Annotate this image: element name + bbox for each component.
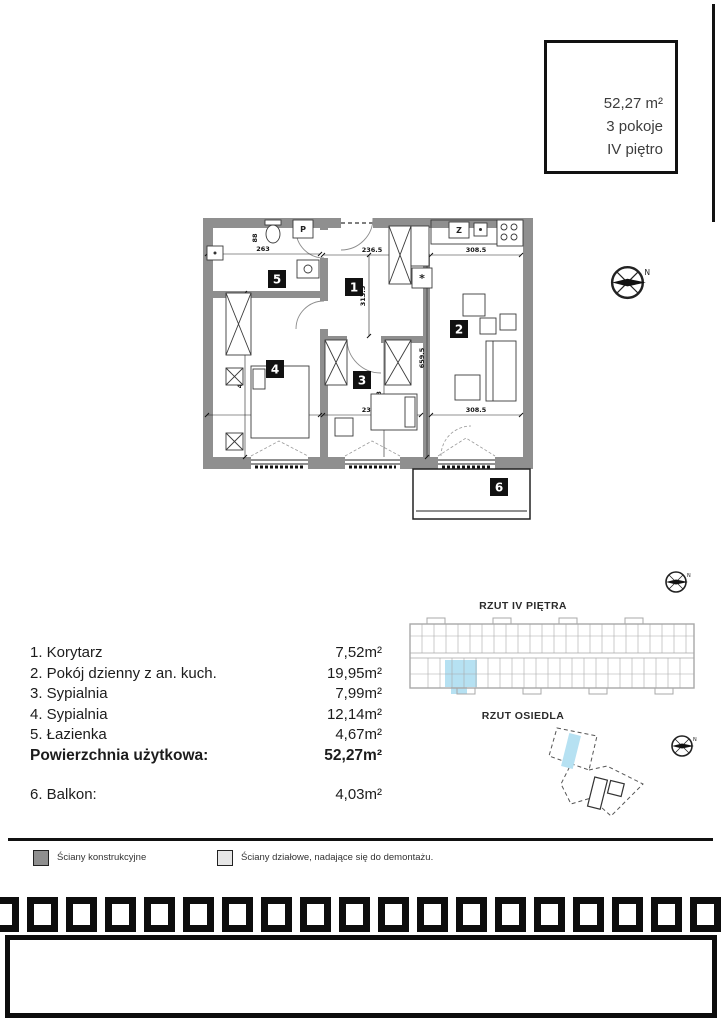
decor-square: [495, 897, 526, 932]
room-list-item: 5. Łazienka 4,67m²: [30, 725, 382, 746]
room-list-item: 4. Sypialnia 12,14m²: [30, 705, 382, 726]
room-area: 7,99m²: [335, 684, 382, 705]
decor-square: [261, 897, 292, 932]
decor-square: [144, 897, 175, 932]
apartment-area: 52,27 m²: [604, 92, 663, 115]
apartment-info-box: 52,27 m² 3 pokoje IV piętro: [544, 40, 678, 174]
dim-right-vert: 659.5: [418, 347, 426, 368]
decor-square: [417, 897, 448, 932]
decor-square: [378, 897, 409, 932]
building-floor-strip: [405, 612, 700, 702]
structural-wall-swatch: [33, 850, 49, 866]
legend-divider: [8, 838, 713, 841]
decor-square: [105, 897, 136, 932]
apartment-floor-plan: 263 236.5 308.5 88 313.5 659.5 461.5 338…: [195, 208, 540, 528]
meter-label: *: [419, 272, 425, 285]
apartment-rooms: 3 pokoje: [606, 115, 663, 138]
decor-square: [27, 897, 58, 932]
estate-site-plan: [495, 720, 685, 838]
badge-room-4: 4: [271, 363, 279, 377]
partition-wall-label: Ściany działowe, nadające się do demonta…: [241, 849, 433, 866]
total-label: Powierzchnia użytkowa:: [30, 746, 208, 767]
apartment-floor: IV piętro: [607, 138, 663, 161]
decor-square: [300, 897, 331, 932]
decor-square: [66, 897, 97, 932]
total-area: 52,27m²: [324, 746, 382, 767]
north-arrow-icon: N: [606, 258, 652, 304]
decor-square: [456, 897, 487, 932]
room-list-item: 1. Korytarz 7,52m²: [30, 643, 382, 664]
room-list-item: 3. Sypialnia 7,99m²: [30, 684, 382, 705]
other-buildings: [588, 777, 625, 809]
svg-text:N: N: [687, 573, 691, 579]
balcony-area: 4,03m²: [335, 785, 382, 806]
decor-square: [573, 897, 604, 932]
usable-area-total: Powierzchnia użytkowa: 52,27m²: [30, 746, 382, 767]
structural-wall-label: Ściany konstrukcyjne: [57, 849, 146, 866]
top-right-vertical-rule: [712, 4, 715, 222]
room-area: 12,14m²: [327, 705, 382, 726]
badge-room-2: 2: [455, 323, 463, 337]
dim-top-right: 308.5: [466, 246, 487, 254]
highlighted-building: [561, 733, 581, 769]
decor-square: [183, 897, 214, 932]
room-name: 3. Sypialnia: [30, 684, 108, 705]
legend-structural-item: Ściany konstrukcyjne: [33, 849, 146, 866]
decor-square: [339, 897, 370, 932]
decor-square: [534, 897, 565, 932]
washer-label: P: [300, 225, 306, 234]
dim-top-left: 263: [256, 245, 270, 253]
floor-view-title: RZUT IV PIĘTRA: [408, 600, 638, 612]
room-list: 1. Korytarz 7,52m² 2. Pokój dzienny z an…: [30, 643, 382, 806]
fixtures: [207, 220, 523, 450]
badge-room-5: 5: [273, 273, 281, 287]
badge-room-1: 1: [350, 281, 358, 295]
partition-wall-swatch: [217, 850, 233, 866]
room-name: 2. Pokój dzienny z an. kuch.: [30, 664, 217, 685]
room-name: 1. Korytarz: [30, 643, 103, 664]
dim-top-mid: 236.5: [362, 246, 383, 254]
badge-room-3: 3: [358, 374, 366, 388]
room-list-item: 2. Pokój dzienny z an. kuch. 19,95m²: [30, 664, 382, 685]
room-area: 7,52m²: [335, 643, 382, 664]
balcony-row: 6. Balkon: 4,03m²: [30, 785, 382, 806]
decor-square: [612, 897, 643, 932]
dim-left-small: 88: [251, 233, 259, 243]
svg-text:N: N: [693, 737, 697, 743]
badge-room-6: 6: [495, 481, 503, 495]
decor-square: [222, 897, 253, 932]
dim-bottom-right: 308.5: [466, 406, 487, 414]
decor-square: [0, 897, 19, 932]
decor-squares-band: [0, 897, 722, 932]
room-name: 5. Łazienka: [30, 725, 107, 746]
room-name: 4. Sypialnia: [30, 705, 108, 726]
decor-square: [651, 897, 682, 932]
north-arrow-icon: N: [662, 566, 692, 596]
apartment-highlight: [445, 660, 477, 694]
north-arrow-icon: N: [668, 730, 698, 760]
room-area: 4,67m²: [335, 725, 382, 746]
room-area: 19,95m²: [327, 664, 382, 685]
floor-plan-page: 52,27 m² 3 pokoje IV piętro: [0, 0, 722, 1023]
balcony-label: 6. Balkon:: [30, 785, 97, 806]
decor-square: [690, 897, 721, 932]
balcony: [413, 469, 530, 519]
svg-text:N: N: [644, 268, 650, 277]
sink-label: Z: [456, 226, 462, 235]
bottom-frame-box: [5, 935, 717, 1018]
legend-partition-item: Ściany działowe, nadające się do demonta…: [217, 849, 433, 866]
